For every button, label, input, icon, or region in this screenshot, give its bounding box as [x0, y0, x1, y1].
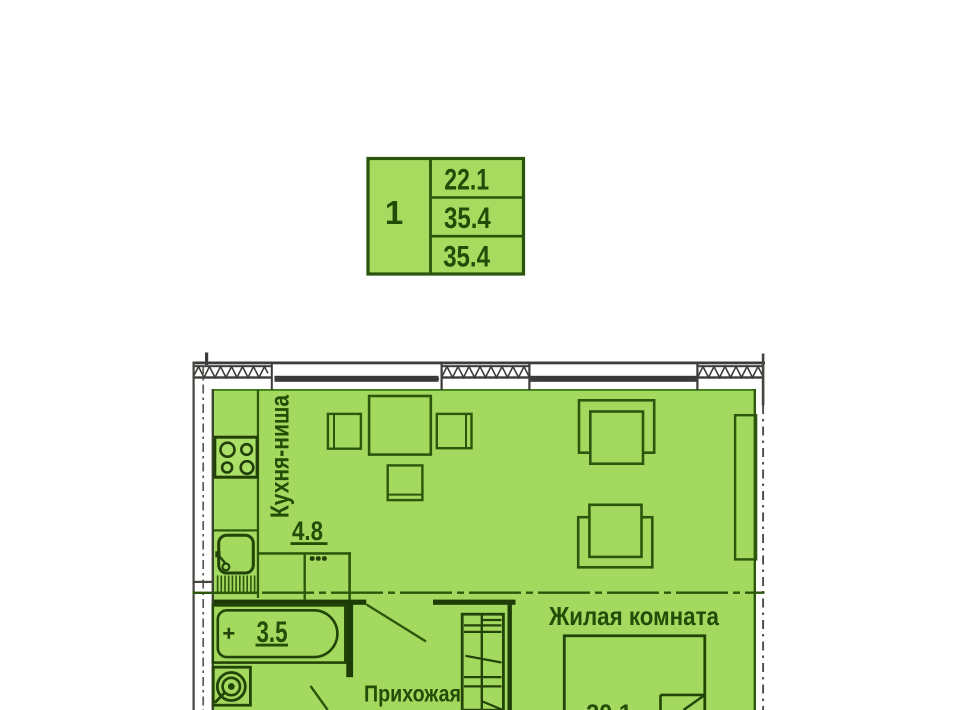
svg-text:20.1: 20.1: [586, 700, 632, 710]
svg-text:4.8: 4.8: [292, 516, 323, 546]
svg-text:Жилая комната: Жилая комната: [548, 601, 719, 631]
svg-text:1: 1: [385, 194, 403, 231]
svg-text:Прихожая: Прихожая: [364, 681, 461, 707]
svg-text:35.4: 35.4: [443, 241, 490, 274]
svg-text:22.1: 22.1: [444, 164, 489, 197]
svg-text:Кухня-ниша: Кухня-ниша: [265, 395, 295, 518]
svg-text:35.4: 35.4: [444, 202, 491, 235]
